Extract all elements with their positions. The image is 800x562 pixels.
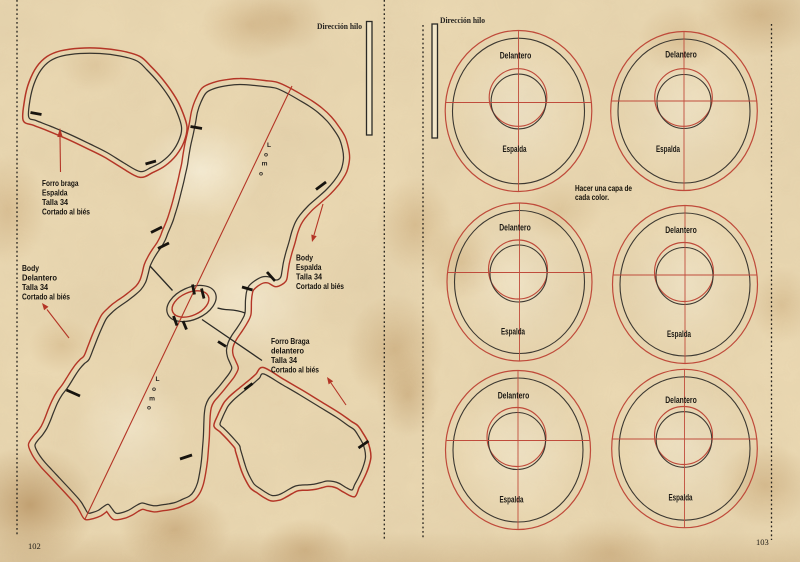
- svg-text:Espalda: Espalda: [667, 329, 691, 339]
- svg-text:Body: Body: [22, 264, 39, 273]
- svg-text:m: m: [149, 396, 155, 403]
- svg-text:Delantero: Delantero: [665, 225, 697, 235]
- svg-text:o: o: [147, 405, 151, 412]
- svg-text:Cortado al biés: Cortado al biés: [42, 208, 90, 217]
- svg-text:Delantero: Delantero: [498, 391, 530, 401]
- svg-text:Delantero: Delantero: [500, 51, 532, 61]
- svg-text:Cortado al biés: Cortado al biés: [22, 293, 70, 302]
- svg-text:Forro braga: Forro braga: [42, 179, 79, 188]
- svg-text:Forro Braga: Forro Braga: [271, 337, 310, 346]
- svg-text:103: 103: [756, 537, 769, 547]
- svg-text:Dirección hilo: Dirección hilo: [440, 16, 485, 25]
- svg-text:L: L: [155, 376, 159, 383]
- svg-text:o: o: [152, 386, 156, 393]
- svg-text:Espalda: Espalda: [503, 144, 527, 154]
- svg-text:Talla 34: Talla 34: [42, 198, 68, 207]
- svg-text:Dirección hilo: Dirección hilo: [317, 22, 362, 31]
- svg-text:m: m: [262, 161, 268, 168]
- svg-text:Espalda: Espalda: [42, 189, 68, 198]
- svg-text:o: o: [264, 152, 268, 159]
- svg-text:Talla 34: Talla 34: [271, 356, 297, 365]
- svg-text:Espalda: Espalda: [500, 495, 524, 505]
- svg-text:Espalda: Espalda: [501, 327, 525, 337]
- svg-text:o: o: [259, 171, 263, 178]
- svg-text:Delantero: Delantero: [22, 274, 57, 283]
- svg-text:Cortado al biés: Cortado al biés: [271, 366, 319, 375]
- svg-text:Delantero: Delantero: [499, 223, 531, 233]
- svg-text:Delantero: Delantero: [665, 50, 697, 60]
- svg-text:delantero: delantero: [271, 347, 304, 356]
- svg-text:Body: Body: [296, 254, 313, 263]
- svg-text:Espalda: Espalda: [656, 144, 680, 154]
- svg-text:cada color.: cada color.: [575, 193, 609, 202]
- svg-text:Espalda: Espalda: [296, 263, 322, 272]
- svg-text:Talla 34: Talla 34: [296, 273, 322, 282]
- svg-text:Cortado al biés: Cortado al biés: [296, 282, 344, 291]
- svg-text:L: L: [267, 142, 271, 149]
- svg-text:Hacer una capa de: Hacer una capa de: [575, 184, 632, 193]
- svg-text:Espalda: Espalda: [669, 493, 693, 503]
- svg-text:Talla 34: Talla 34: [22, 283, 48, 292]
- svg-text:Delantero: Delantero: [665, 395, 697, 405]
- svg-text:102: 102: [28, 541, 41, 551]
